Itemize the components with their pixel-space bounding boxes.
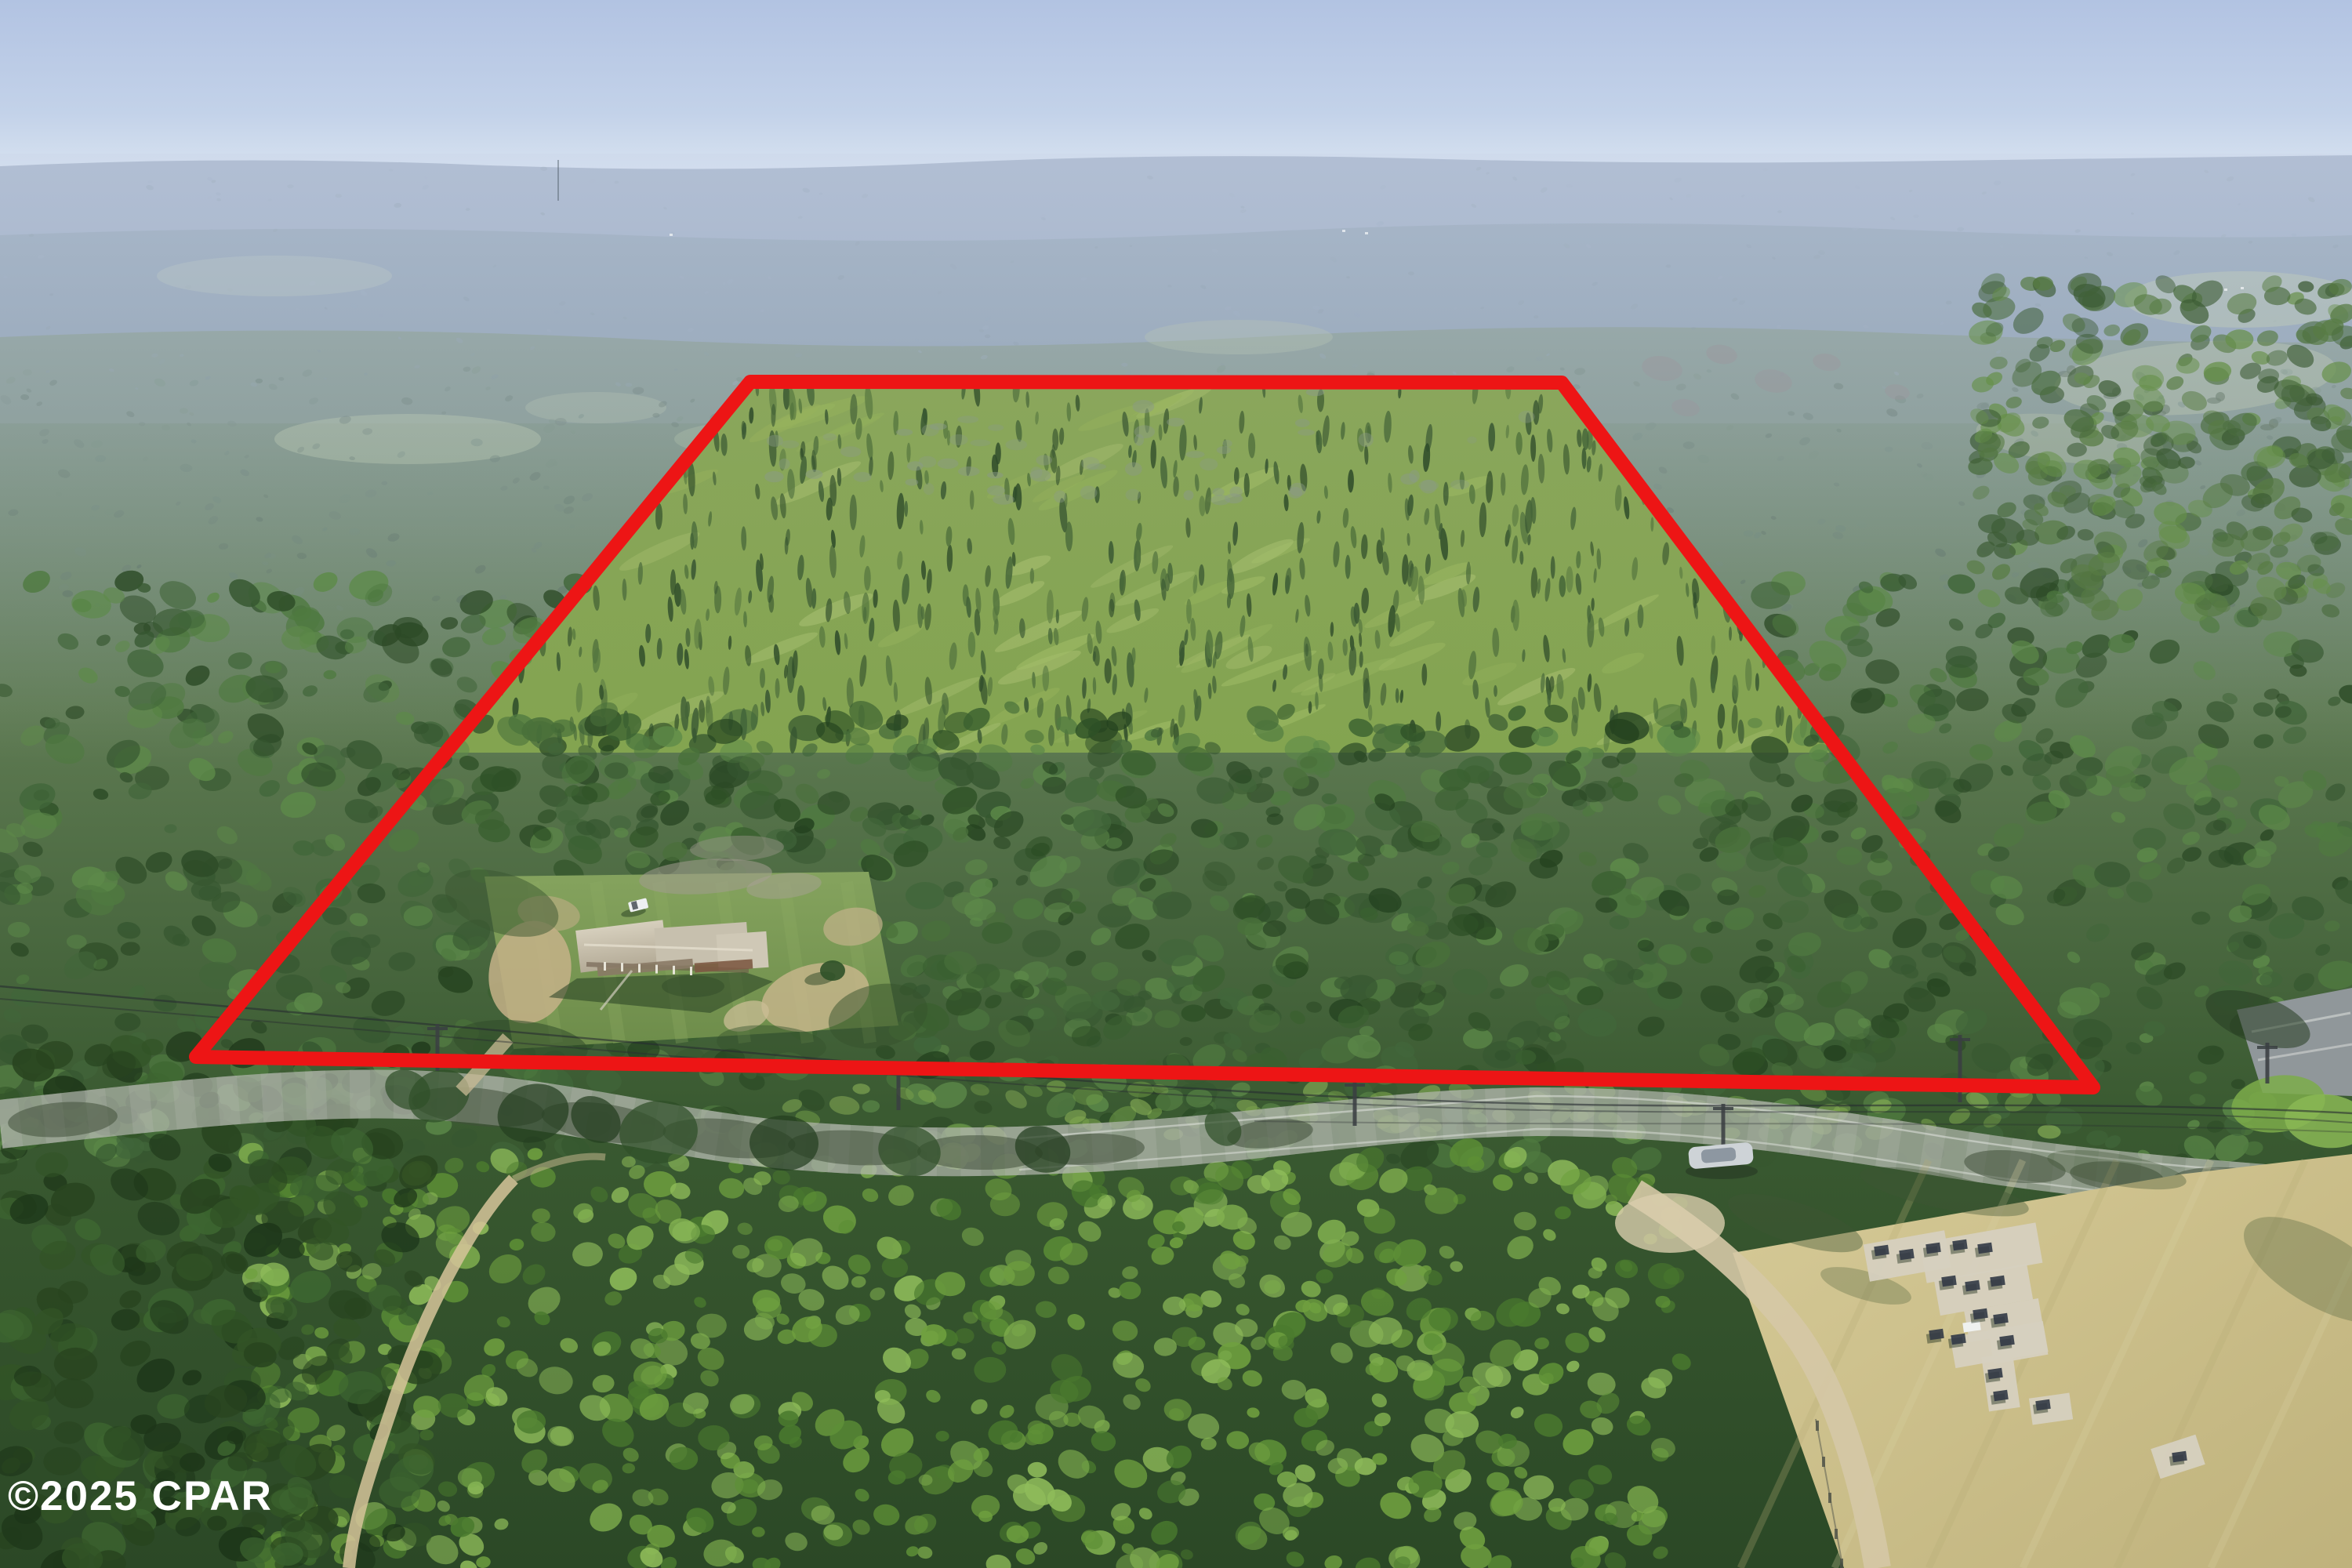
watermark-text: ©2025 CPAR — [8, 1473, 273, 1519]
driveway-apron — [1615, 1193, 1725, 1253]
aerial-photo: ©2025 CPAR — [0, 0, 2352, 1568]
car-on-road — [1686, 1142, 1758, 1179]
scene-svg: ©2025 CPAR — [0, 0, 2352, 1568]
